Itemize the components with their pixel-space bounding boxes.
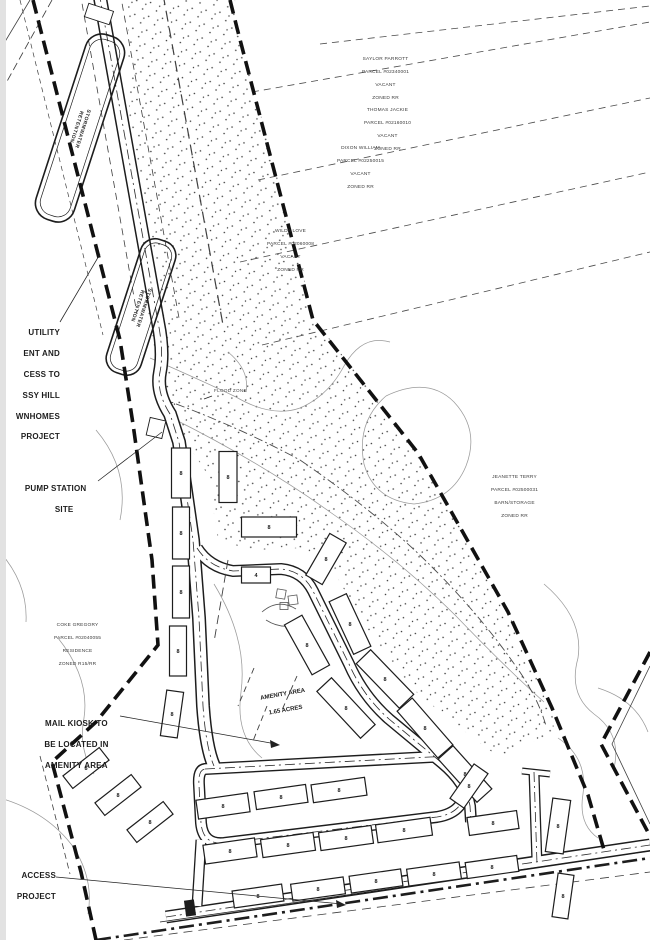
building-unit-count: 8: [176, 649, 179, 655]
building: 8: [407, 862, 462, 886]
mail-kiosk-note: MAIL KIOSK TO BE LOCATED IN AMENITY AREA: [24, 709, 124, 771]
parcel-owner: JEANETTE TERRY: [492, 475, 537, 480]
note-line: ACCESS: [21, 871, 56, 880]
building-unit-count: 8: [561, 894, 564, 900]
building-unit-count: 8: [348, 622, 351, 628]
building: 8: [170, 626, 187, 676]
note-line: SITE: [55, 505, 74, 514]
building-unit-count: 8: [228, 849, 231, 855]
building: 8: [242, 517, 297, 537]
note-line: PROJECT: [17, 892, 56, 901]
building-unit-count: 8: [344, 706, 347, 712]
building: 8: [545, 798, 570, 854]
parcel-owner: WILDA LOVE: [275, 229, 306, 234]
building: 8: [173, 507, 190, 559]
building-unit-count: 8: [305, 643, 308, 649]
parcel-number: PARCEL #02250015: [337, 159, 384, 164]
parcel-label: SAYLOR PARROTT PARCEL #02340001 VACANT Z…: [338, 50, 430, 103]
building: 8: [95, 775, 141, 816]
building-unit-count: 8: [556, 824, 559, 830]
site-plan-page: STORMWATER RETENTION STORMWATER RETENTIO…: [0, 0, 650, 940]
parcel-use: RESIDENCE: [63, 649, 93, 654]
building-unit-count: 8: [344, 836, 347, 842]
note-line: PROJECT: [21, 432, 60, 441]
building-unit-count: 8: [374, 879, 377, 885]
building-unit-count: 8: [490, 865, 493, 871]
pump-station-site-outline: [146, 417, 166, 438]
building-unit-count: 8: [337, 788, 340, 794]
building-unit-count: 8: [423, 726, 426, 732]
parcel-use: BARN/STORAGE: [494, 501, 534, 506]
parcel-label: DIXON WILLIAM PARCEL #02250015 VACANT ZO…: [313, 139, 405, 192]
parcel-zoning: ZONED RR: [277, 268, 304, 273]
parcel-number: PARCEL #02500031: [491, 488, 538, 493]
building: 8: [254, 784, 308, 809]
parcel-number: PARCEL #02340001: [362, 70, 409, 75]
building-unit-count: 8: [179, 531, 182, 537]
building-unit-count: 8: [221, 804, 224, 810]
building-unit-count: 8: [116, 793, 119, 799]
building-unit-count: 8: [256, 894, 259, 900]
note-line: PUMP STATION: [25, 484, 87, 493]
note-line: MAIL KIOSK TO: [45, 719, 108, 728]
building: 8: [172, 448, 191, 498]
parcel-zoning: ZONED RR: [501, 514, 528, 519]
building-unit-count: 8: [491, 821, 494, 827]
building-unit-count: 8: [148, 820, 151, 826]
building-unit-count: 8: [286, 843, 289, 849]
building: 4: [242, 567, 271, 583]
building: 8: [465, 855, 519, 878]
parcel-owner: COKE GREGORY: [57, 623, 99, 628]
access-note: ACCESS PROJECT: [0, 861, 56, 903]
building: 8: [219, 452, 237, 503]
parcel-owner: THOMAS JACKIE: [367, 108, 408, 113]
parcel-use: VACANT: [375, 83, 395, 88]
building-unit-count: 8: [179, 590, 182, 596]
parcel-label: COKE GREGORY PARCEL #02040055 RESIDENCE …: [30, 616, 122, 669]
pump-station-note: PUMP STATION SITE: [20, 474, 110, 516]
building-unit-count: 8: [279, 795, 282, 801]
note-line: AMENITY AREA: [45, 761, 108, 770]
building: 8: [160, 690, 183, 738]
building: 8: [127, 802, 173, 843]
note-line: UTILITY: [28, 328, 60, 337]
parcel-zoning: ZONED RR: [347, 185, 374, 190]
note-line: WNHOMES: [16, 412, 60, 421]
building-unit-count: 8: [383, 677, 386, 683]
note-line: SSY HILL: [23, 391, 60, 400]
parcel-use: VACANT: [350, 172, 370, 177]
building-unit-count: 8: [226, 475, 229, 481]
parcel-zoning: ZONED R15/RR: [59, 662, 97, 667]
building-unit-count: 8: [324, 557, 327, 563]
parcel-number: PARCEL #02040055: [54, 636, 101, 641]
building-unit-count: 8: [170, 712, 173, 718]
building: 8: [173, 566, 190, 618]
utility-easement-note: UTILITY ENT AND CESS TO SSY HILL WNHOMES…: [0, 318, 60, 443]
parcel-number: PARCEL #02160010: [364, 121, 411, 126]
note-line: BE LOCATED IN: [44, 740, 108, 749]
building-unit-count: 8: [267, 525, 270, 531]
parcel-label: JEANETTE TERRY PARCEL #02500031 BARN/STO…: [467, 468, 559, 521]
note-line: ENT AND: [23, 349, 60, 358]
flood-zone-label: FLOOD ZONE: [214, 388, 247, 394]
building-unit-count: 8: [402, 828, 405, 834]
parcel-owner: SAYLOR PARROTT: [363, 57, 409, 62]
building-unit-count: 8: [316, 887, 319, 893]
parcel-use: VACANT: [280, 255, 300, 260]
note-line: AMENITY AREA: [260, 688, 306, 702]
building-unit-count: 8: [467, 784, 470, 790]
parcel-label: WILDA LOVE PARCEL #02060008 VACANT ZONED…: [243, 222, 335, 275]
building-unit-count: 8: [432, 872, 435, 878]
note-line: CESS TO: [24, 370, 60, 379]
building: 8: [311, 777, 367, 802]
building-unit-count: 8: [179, 471, 182, 477]
parcel-number: PARCEL #02060008: [267, 242, 314, 247]
scan-edge: [0, 0, 6, 940]
utility-leader: [60, 254, 100, 322]
building: 8: [552, 873, 574, 919]
note-line: FLOOD ZONE: [214, 388, 247, 393]
parcel-owner: DIXON WILLIAM: [341, 146, 380, 151]
